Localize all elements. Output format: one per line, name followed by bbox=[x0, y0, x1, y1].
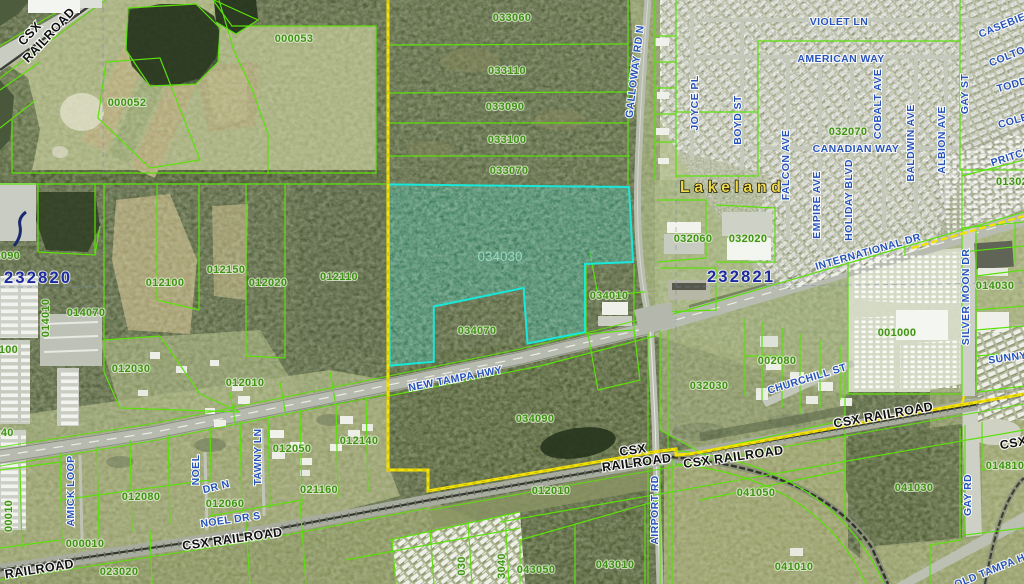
svg-text:033100: 033100 bbox=[488, 134, 527, 146]
svg-text:014030: 014030 bbox=[976, 280, 1015, 292]
svg-text:034010: 034010 bbox=[590, 290, 629, 302]
svg-text:SILVER MOON DR: SILVER MOON DR bbox=[960, 249, 972, 345]
svg-text:032070: 032070 bbox=[829, 126, 868, 138]
svg-text:000010: 000010 bbox=[66, 538, 105, 550]
svg-text:AIRPORT RD: AIRPORT RD bbox=[649, 475, 661, 544]
svg-text:032060: 032060 bbox=[674, 233, 713, 245]
svg-text:032020: 032020 bbox=[729, 233, 768, 245]
svg-text:AMERICAN WAY: AMERICAN WAY bbox=[797, 53, 884, 65]
svg-text:000053: 000053 bbox=[275, 33, 314, 45]
svg-text:232820: 232820 bbox=[4, 269, 72, 287]
svg-text:034030: 034030 bbox=[477, 249, 522, 264]
svg-text:232821: 232821 bbox=[707, 268, 775, 286]
svg-text:041050: 041050 bbox=[737, 487, 776, 499]
svg-text:034090: 034090 bbox=[516, 413, 555, 425]
svg-text:00010: 00010 bbox=[3, 500, 15, 532]
svg-text:012010: 012010 bbox=[226, 377, 265, 389]
svg-text:014010: 014010 bbox=[40, 299, 52, 338]
svg-text:012080: 012080 bbox=[122, 491, 161, 503]
svg-text:021160: 021160 bbox=[300, 484, 338, 496]
svg-text:012140: 012140 bbox=[340, 435, 379, 447]
svg-text:014070: 014070 bbox=[67, 307, 106, 319]
svg-text:043050: 043050 bbox=[517, 564, 556, 576]
svg-text:012030: 012030 bbox=[112, 363, 151, 375]
svg-text:01302: 01302 bbox=[996, 176, 1024, 188]
svg-text:023020: 023020 bbox=[100, 566, 139, 578]
svg-text:BALDWIN AVE: BALDWIN AVE bbox=[905, 104, 917, 181]
svg-text:012010: 012010 bbox=[532, 485, 571, 497]
svg-text:13100: 13100 bbox=[0, 344, 18, 356]
svg-text:012020: 012020 bbox=[249, 277, 288, 289]
svg-text:014810: 014810 bbox=[986, 460, 1024, 472]
svg-text:000052: 000052 bbox=[108, 97, 147, 109]
svg-text:033090: 033090 bbox=[486, 101, 525, 113]
svg-text:ALBION AVE: ALBION AVE bbox=[936, 106, 948, 174]
svg-text:041030: 041030 bbox=[895, 482, 934, 494]
svg-text:Lakeland: Lakeland bbox=[680, 179, 785, 196]
svg-text:032030: 032030 bbox=[690, 380, 729, 392]
svg-text:EMPIRE AVE: EMPIRE AVE bbox=[811, 171, 823, 239]
svg-text:033060: 033060 bbox=[493, 12, 532, 24]
svg-text:GAY ST: GAY ST bbox=[959, 74, 971, 115]
svg-text:HOLIDAY BLVD: HOLIDAY BLVD bbox=[843, 159, 855, 241]
svg-text:GAY RD: GAY RD bbox=[962, 474, 974, 516]
svg-text:012060: 012060 bbox=[206, 498, 245, 510]
svg-text:012150: 012150 bbox=[207, 264, 246, 276]
svg-text:JOYCE PL: JOYCE PL bbox=[689, 75, 701, 130]
svg-text:TAWNY LN: TAWNY LN bbox=[252, 428, 264, 485]
svg-text:012100: 012100 bbox=[146, 277, 185, 289]
svg-text:3040: 3040 bbox=[496, 553, 508, 579]
svg-text:NOEL: NOEL bbox=[190, 454, 202, 485]
svg-text:033110: 033110 bbox=[488, 65, 526, 77]
svg-text:0140: 0140 bbox=[0, 427, 14, 439]
svg-text:BOYD ST: BOYD ST bbox=[732, 95, 744, 145]
svg-text:034070: 034070 bbox=[458, 325, 497, 337]
svg-text:COBALT AVE: COBALT AVE bbox=[872, 69, 884, 139]
svg-text:14090: 14090 bbox=[0, 250, 20, 262]
svg-text:043010: 043010 bbox=[596, 559, 635, 571]
svg-text:002080: 002080 bbox=[758, 355, 797, 367]
svg-text:041010: 041010 bbox=[775, 561, 814, 573]
svg-text:030: 030 bbox=[456, 556, 468, 575]
svg-text:CANADIAN WAY: CANADIAN WAY bbox=[813, 143, 900, 155]
svg-text:012110: 012110 bbox=[320, 271, 358, 283]
svg-text:001000: 001000 bbox=[878, 327, 917, 339]
svg-text:033070: 033070 bbox=[490, 165, 529, 177]
svg-text:VIOLET LN: VIOLET LN bbox=[810, 16, 868, 28]
svg-text:012050: 012050 bbox=[273, 443, 312, 455]
svg-text:AMICK LOOP: AMICK LOOP bbox=[65, 455, 77, 526]
